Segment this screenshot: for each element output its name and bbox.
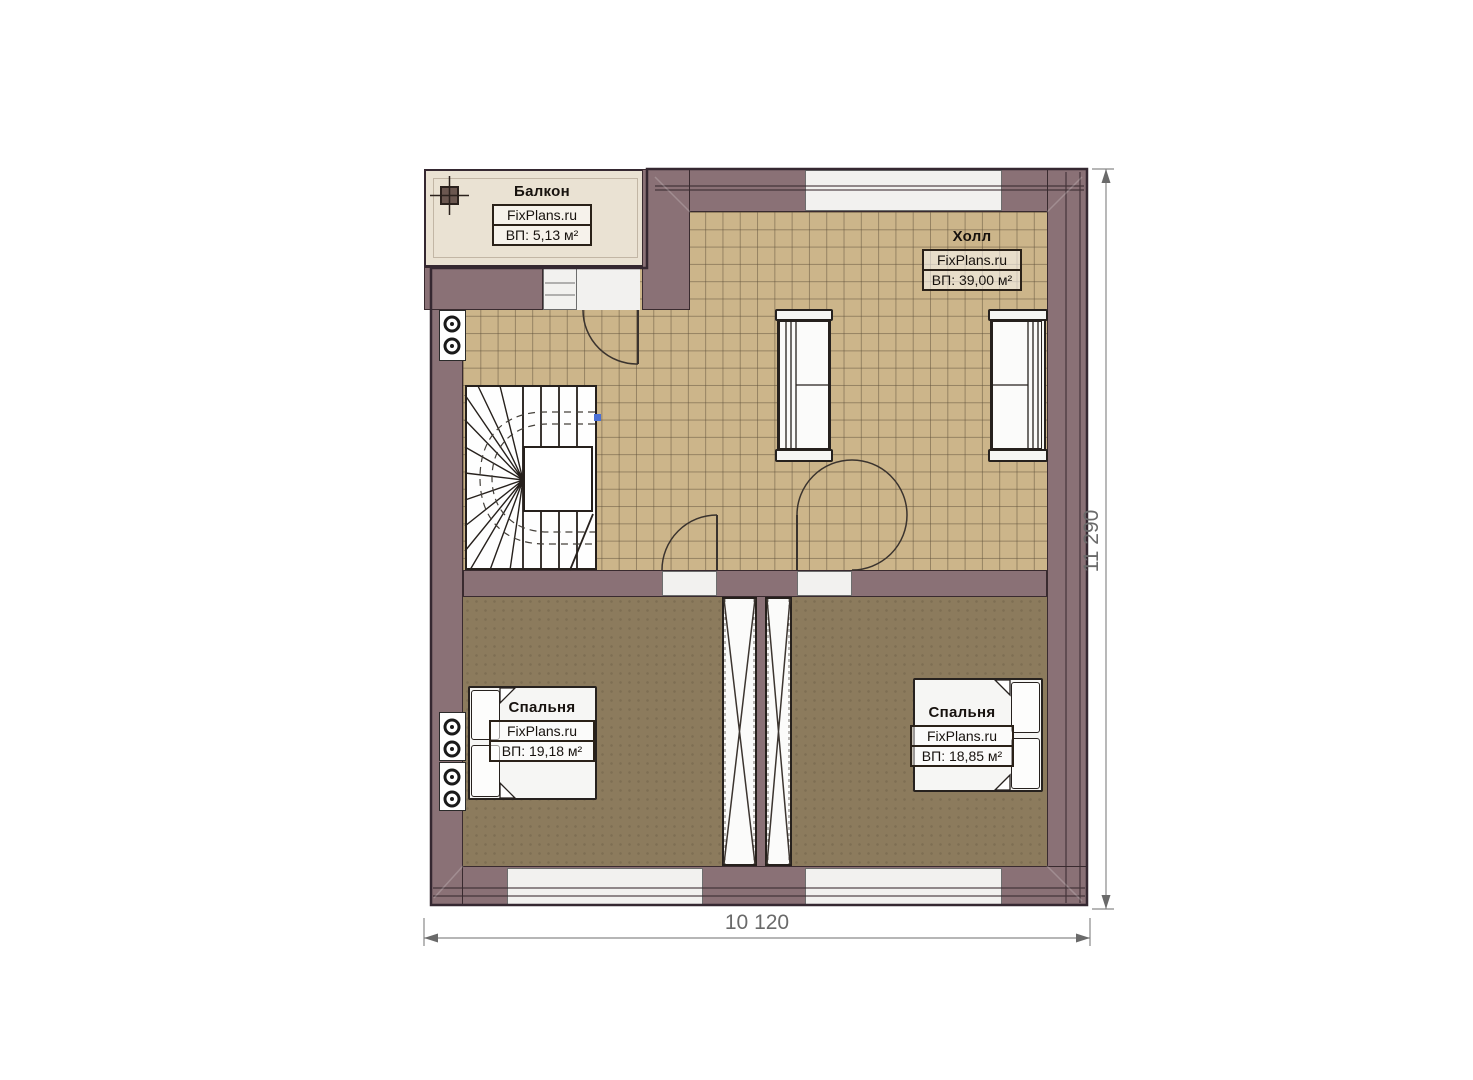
watermark-text: FixPlans.ru	[491, 722, 593, 740]
bedroom-left-door-opening	[662, 571, 717, 596]
floor-plan: Балкон FixPlans.ru ВП: 5,13 м² Холл FixP…	[0, 0, 1473, 1080]
wall-hall-bedrooms	[463, 570, 1047, 597]
wardrobe-right-cap-top	[988, 309, 1048, 321]
wardrobe-right-cap-bottom	[988, 449, 1048, 462]
room-title: Спальня	[910, 704, 1014, 721]
window-bottom-right	[805, 868, 1002, 906]
room-area-text: ВП: 18,85 м²	[912, 745, 1012, 765]
room-title: Холл	[922, 228, 1022, 245]
hall-label: Холл FixPlans.ru ВП: 39,00 м²	[922, 228, 1022, 291]
radiator	[439, 310, 466, 361]
balcony-door-opening	[577, 268, 640, 310]
watermark-text: FixPlans.ru	[494, 206, 590, 224]
window-bottom-left	[507, 868, 703, 906]
closet-panel-right	[765, 597, 792, 866]
staircase-landing	[523, 446, 593, 512]
room-area-text: ВП: 39,00 м²	[924, 269, 1020, 289]
bedroom-right-label: Спальня FixPlans.ru ВП: 18,85 м²	[910, 704, 1014, 767]
room-area-text: ВП: 5,13 м²	[494, 224, 590, 244]
room-title: Балкон	[492, 183, 592, 200]
wardrobe-right-inner	[992, 321, 1042, 449]
wall-closet-divider	[757, 597, 765, 866]
radiator	[439, 762, 466, 811]
bedroom-right-door-opening	[797, 571, 852, 596]
room-info-box: FixPlans.ru ВП: 39,00 м²	[922, 249, 1022, 291]
dimension-width-label: 10 120	[687, 911, 827, 935]
balcony-label: Балкон FixPlans.ru ВП: 5,13 м²	[492, 183, 592, 246]
pillow-icon	[1011, 738, 1040, 789]
room-info-box: FixPlans.ru ВП: 18,85 м²	[910, 725, 1014, 767]
watermark-text: FixPlans.ru	[912, 727, 1012, 745]
room-info-box: FixPlans.ru ВП: 5,13 м²	[492, 204, 592, 246]
window-top	[805, 170, 1002, 211]
wardrobe-left-cap-bottom	[775, 449, 833, 462]
room-info-box: FixPlans.ru ВП: 19,18 м²	[489, 720, 595, 762]
radiator	[439, 712, 466, 761]
wall-balcony-bottom	[424, 267, 543, 310]
balcony-door-jamb	[543, 267, 577, 310]
chimney-marker-icon	[440, 186, 459, 205]
wardrobe-left-inner	[779, 321, 829, 449]
bedroom-left-label: Спальня FixPlans.ru ВП: 19,18 м²	[489, 699, 595, 762]
watermark-text: FixPlans.ru	[924, 251, 1020, 269]
room-area-text: ВП: 19,18 м²	[491, 740, 593, 760]
wall-balcony-right	[642, 169, 690, 310]
wardrobe-left-cap-top	[775, 309, 833, 321]
room-title: Спальня	[489, 699, 595, 716]
closet-panel-left	[722, 597, 757, 866]
pillow-icon	[1011, 682, 1040, 733]
dimension-height-label: 11 290	[1080, 496, 1104, 586]
